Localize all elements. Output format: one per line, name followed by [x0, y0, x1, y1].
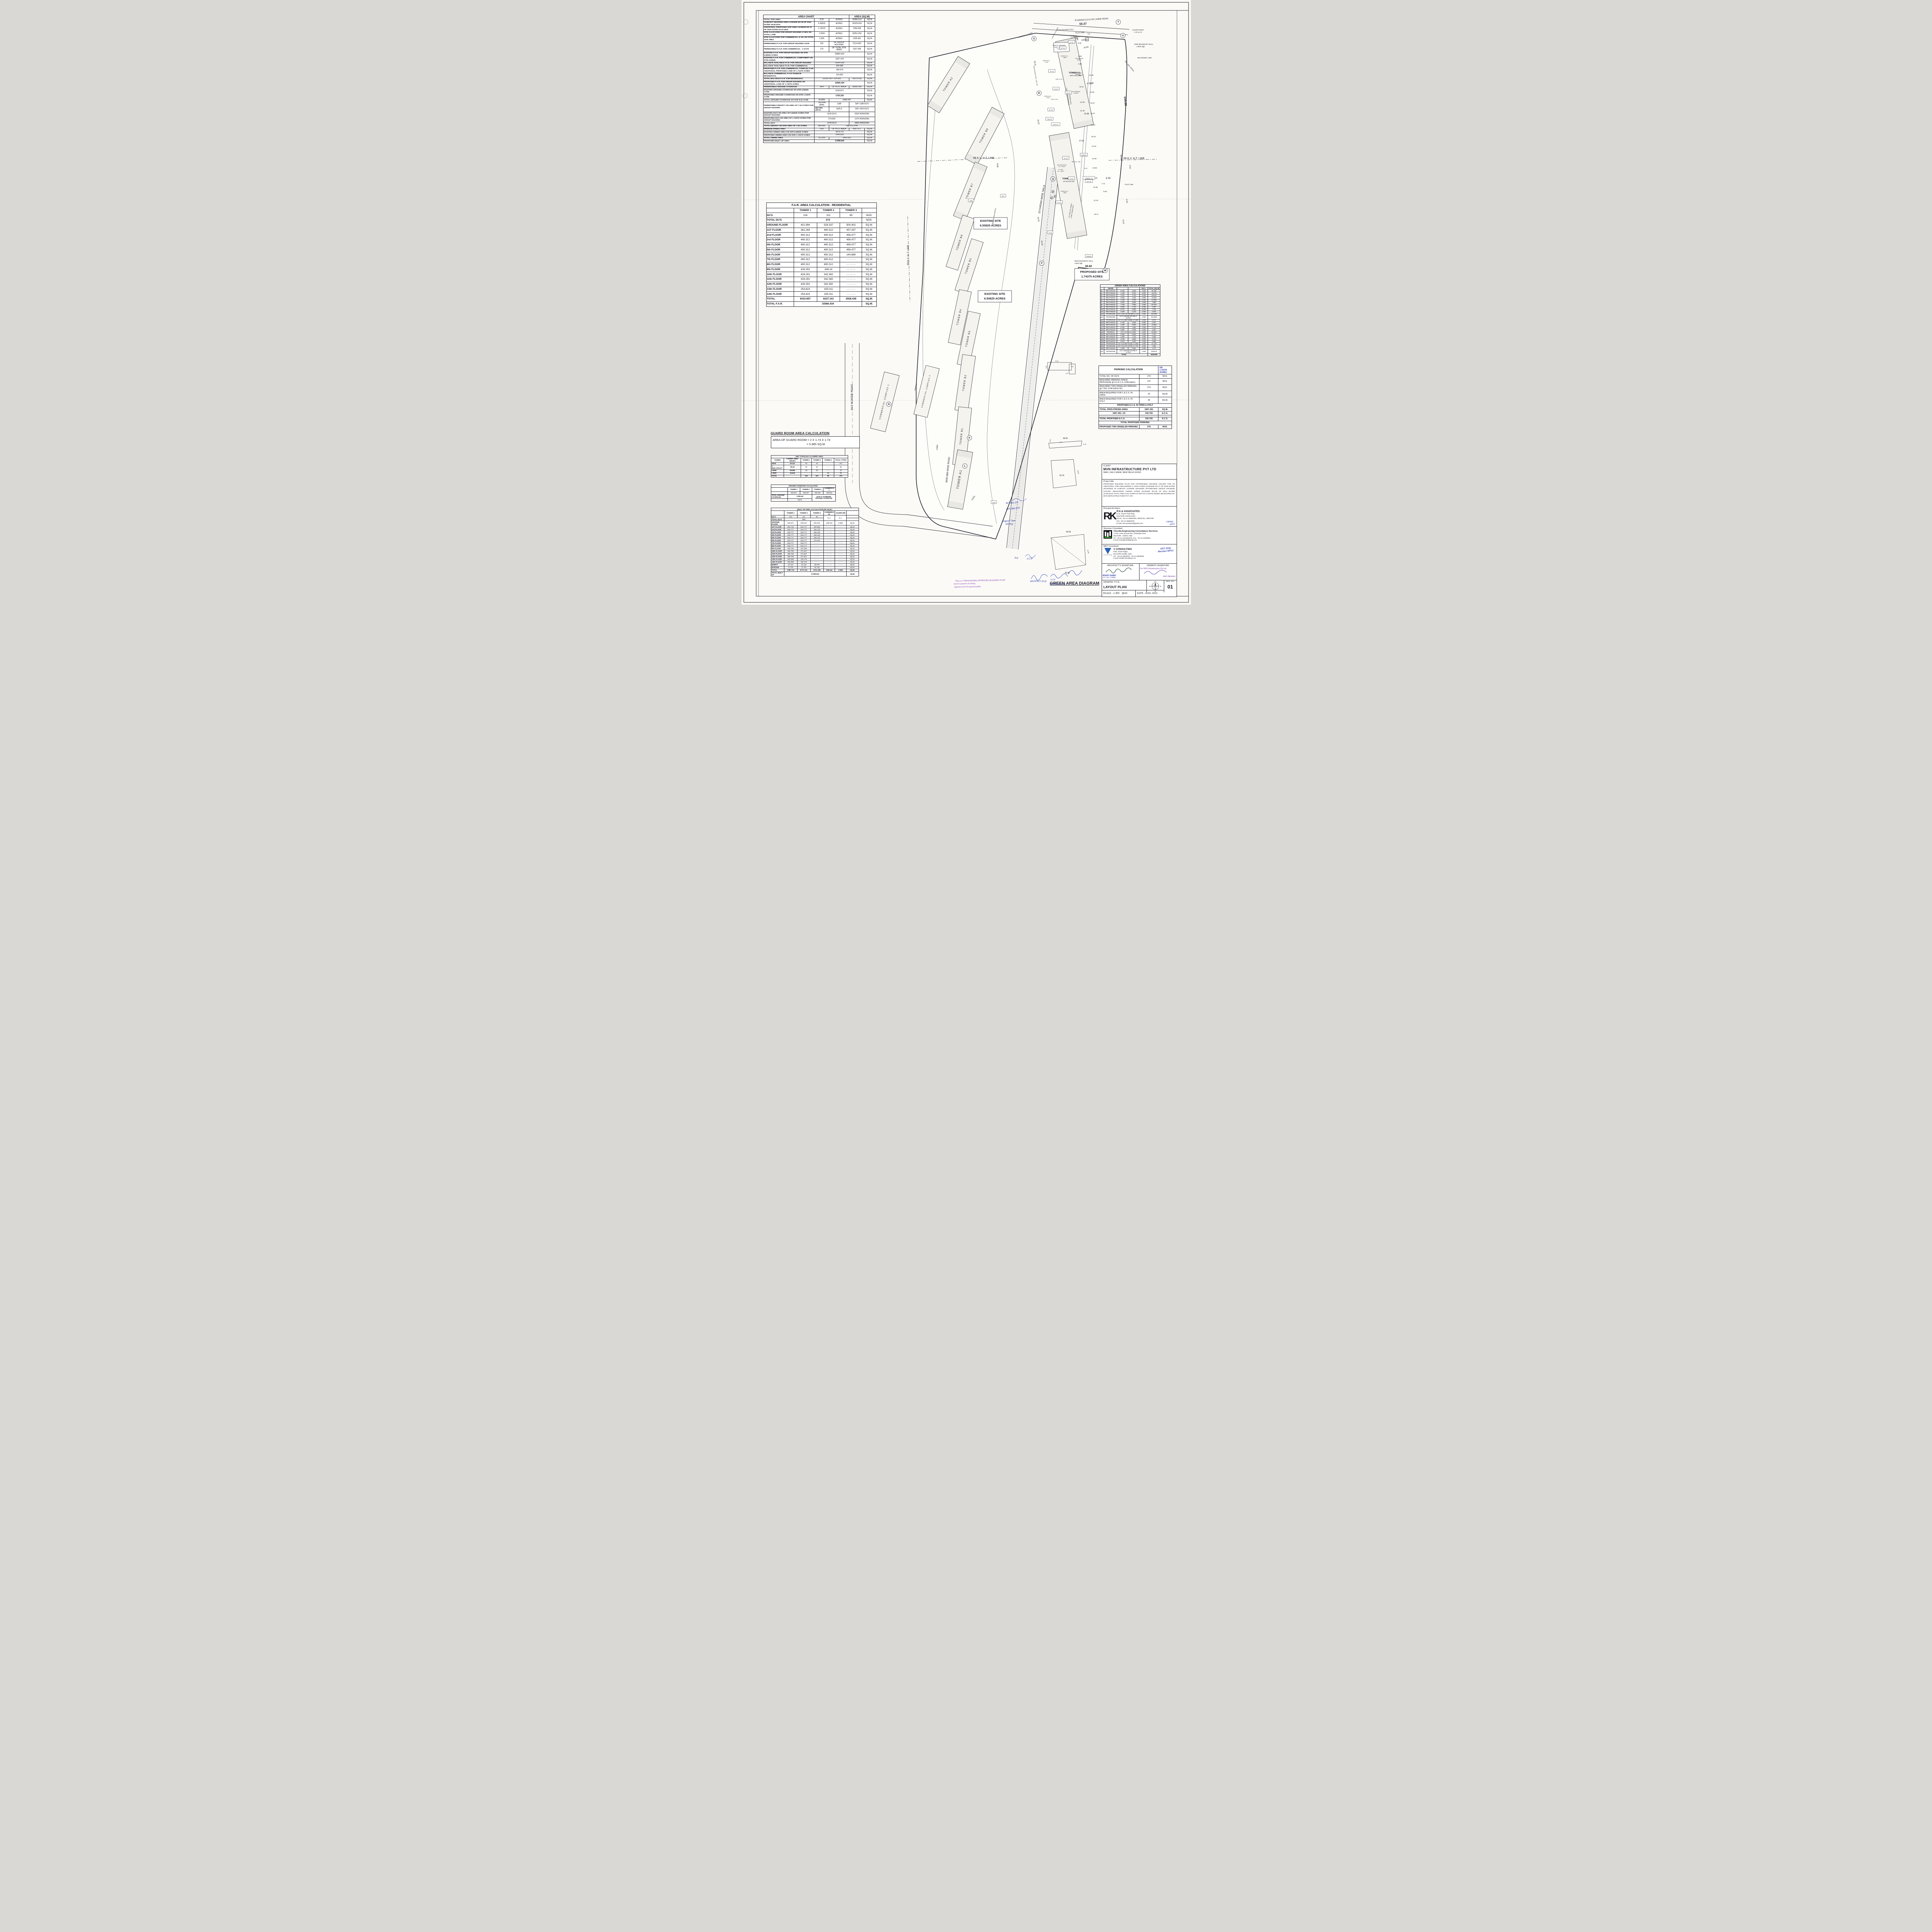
table-row: M.ROOM71.37071.37064.745- - - - -SQ.M. — [771, 566, 859, 569]
table-cell: SQ.M. — [862, 257, 876, 262]
plan-label: PARKING — [1077, 59, 1081, 61]
table-cell: 1ST FLOOR — [771, 526, 784, 528]
architect-line: Ph.No: +91-11-26963158, 26516751, 265673… — [1117, 517, 1154, 520]
table-row: TOTAL PROPOSED E.C.S.150.755E.C.S. — [1099, 417, 1172, 421]
table-cell: 342.382 — [817, 282, 840, 287]
table-cell: 490.312 — [794, 257, 817, 262]
table-cell: 150.755 — [1139, 417, 1158, 421]
punch-hole — [743, 20, 748, 24]
table-cell: 519.777 — [784, 528, 797, 531]
table-cell: N.A. — [823, 515, 835, 521]
plan-label: 15.17 — [1094, 213, 1099, 215]
table-cell: 6.50625 — [815, 21, 829, 26]
table-cell: - - - - - — [835, 542, 847, 544]
table-cell: 519.777 — [784, 542, 797, 544]
table-cell: TOWER — [771, 458, 784, 463]
table-cell: GROUND COVERAGE CALCULATION — [771, 485, 835, 488]
table-cell: SQ.M. — [865, 47, 875, 52]
plan-label: L — [964, 465, 966, 468]
table-cell: - - - - - — [835, 544, 847, 547]
table-cell: SQ.M. — [1158, 391, 1172, 397]
plan-label: 55.37 — [1079, 22, 1087, 26]
table-cell: 60 — [834, 465, 848, 470]
plan-boxed-label: G+14 — [1053, 87, 1059, 90]
plan-label: PROPOSED SITE — [1080, 270, 1104, 274]
table-row: PROPOSED E.C.S. IN OPEN & STILT — [1099, 403, 1172, 407]
table-cell: 2nd FLOOR — [771, 528, 784, 531]
table-cell: 69 — [822, 475, 834, 478]
table-cell: SQ.M. — [865, 41, 875, 46]
table-cell: - - - - - — [823, 558, 835, 561]
table-cell: 71.370 — [797, 566, 810, 569]
table-cell: RECTANGLE — [1104, 336, 1117, 338]
table-cell: - - - - - — [810, 550, 823, 553]
table-cell: - - - - - — [835, 558, 847, 561]
table-row: 11th FLOOR426.291342.382- - - - - -SQ.M. — [766, 277, 876, 282]
plan-label: LVL.+ 49910 — [1057, 170, 1064, 172]
plan-label: 5.03 — [1055, 360, 1059, 362]
table-cell: 4th FLOOR — [771, 534, 784, 536]
plan-label: only for purpose of inviting — [953, 583, 975, 585]
table-row: 7th FLOOR490.312490.312- - - - - -SQ.M. — [766, 257, 876, 262]
table-cell: 750 PPA (MIN) — [815, 102, 829, 107]
table-row: 12th FLOOR426.291342.382- - - - - -SQ.M. — [766, 282, 876, 287]
table-row: 4th FLOOR519.777519.777484.132- - - - --… — [771, 534, 859, 536]
table-row: TOTAL GROUND COVERAGE ON SITE 8.25 ACRE2… — [763, 99, 875, 102]
plan-label: 27.93 — [1079, 140, 1084, 142]
table-cell: SQ.M. — [865, 131, 875, 134]
table-cell: TOTAL BALANCE F.A.R. FOR RESIDENSIAL — [763, 78, 815, 81]
plan-marker-P: P — [1039, 261, 1044, 265]
plan-label: 66 K.V. H.T. LINE — [1123, 157, 1145, 160]
table-row: 6th FLOOR519.777519.777172.344- - - - --… — [771, 539, 859, 542]
table-cell: 13th FLOOR — [771, 558, 784, 561]
plan-label: (AD-HQ) — [1005, 523, 1013, 526]
table-cell: SQ.M. — [865, 62, 875, 65]
table-row: TOWER 1TOWER 2TOWER 3COMMERCIAL — [771, 487, 835, 492]
table-cell: 519.777 — [784, 544, 797, 547]
table-cell: SQ.M. — [862, 301, 876, 306]
table-cell: 30 — [801, 465, 812, 470]
plan-label: G+14 — [1061, 47, 1065, 49]
table-cell: SQ.M. — [1158, 407, 1172, 411]
table-cell: 519.777 — [797, 526, 810, 528]
table-cell: - - - - - — [835, 555, 847, 558]
table-cell: 71.370 — [784, 566, 797, 569]
far-calculation-panel: F.A.R. AREA CALCULATION - RESIDENTIALTOW… — [766, 202, 877, 307]
table-cell: SQ.M. — [846, 558, 859, 561]
table-cell: 401.994 — [794, 223, 817, 228]
table-cell: - - - - - — [823, 528, 835, 531]
table-row: EXISTING F.A.R. FOR COMMERCIAL COMPONENT… — [763, 57, 875, 62]
compass-e: E — [1160, 585, 1161, 587]
table-cell: 26329.818 — [849, 21, 865, 26]
table-cell: SQ.M. — [865, 128, 875, 131]
table-cell — [846, 515, 859, 518]
table-cell: 499.580 — [815, 65, 865, 68]
table-row: GROUND FLOOR526.871529.337500.402198.615… — [771, 521, 859, 526]
table-row: MINIMUM GREEN AREA15%OF PLOT AREA5007.97… — [763, 128, 875, 131]
table-cell: 438.14 — [817, 267, 840, 272]
table-cell: 4th FLOOR — [766, 242, 794, 247]
table-cell: 101 — [811, 475, 822, 478]
table-cell: SQ.M. — [865, 137, 875, 140]
table-cell: 526.872 — [787, 492, 800, 495]
plan-label: 26.82 — [1085, 265, 1092, 268]
table-cell: SQ.M. — [862, 247, 876, 252]
table-cell: M.ROOM — [771, 566, 784, 569]
table-cell: 6890 PERSONS — [849, 122, 875, 125]
table-row: 11th FLOOR455.756371.847- - - - -- - - -… — [771, 553, 859, 555]
table-cell — [766, 208, 794, 213]
table-row: EXISTING DU'S ON AREA OF 6.50625 ACRES F… — [763, 112, 875, 117]
table-cell: 1ST FLOOR — [766, 228, 794, 233]
plan-boxed-label: G+12 — [1068, 41, 1075, 44]
plan-boxed-label: G+14 — [1048, 108, 1054, 111]
table-row: TOTAL1045.829 — [1100, 354, 1160, 356]
table-cell: TRAPEZIUM — [1104, 313, 1117, 315]
plan-boxed-label: G+12 — [1062, 156, 1069, 160]
table-cell: GREEN AREA CALCULATIONS — [1100, 285, 1160, 287]
table-cell: - - - - - — [823, 534, 835, 536]
structure-consultant-label: Structure Consultant: — [1104, 527, 1175, 530]
table-cell: SQ.M. — [865, 57, 875, 62]
plan-label: LVL.+150 — [1070, 37, 1077, 39]
plan-label: 12.08 — [1080, 101, 1085, 103]
plan-label: g1 — [1051, 197, 1053, 199]
table-row: EXISTING GREEN AREA ON SITE 6.50625 ACRE… — [763, 131, 875, 134]
table-cell: SQ.M. — [865, 36, 875, 41]
table-cell: - - - - - — [823, 547, 835, 550]
table-row: PERMISSIBLE GROUND COVERAGE50%OF PLOT AR… — [763, 86, 875, 89]
table-cell: - - - - - — [810, 542, 823, 544]
built-up-panel: BUILT UP AREA CALCULATION (IN SQ.M.)TOWE… — [771, 508, 859, 577]
table-cell: 172.344 — [810, 539, 823, 542]
punch-hole — [743, 94, 747, 98]
plan-label: K — [968, 437, 970, 439]
table-cell: TOWER 3 — [812, 487, 823, 492]
table-cell: 198.615 — [823, 492, 835, 495]
plan-label: G+12 — [1070, 41, 1074, 43]
table-cell: UNIT TYPOLOGY & CARPET AREA — [771, 456, 848, 458]
table-row: TOTAL SITE AREA8.25ACRES33386.513SQ.M. — [763, 19, 875, 22]
guard-room-line1: AREA OF GUARD ROOM = 2 X 1.73 X 1.73 — [773, 438, 858, 442]
table-cell: 1188 — [829, 102, 849, 107]
plan-label: N — [888, 403, 889, 406]
table-row: BALANCE AVAILABLE F.A.R. FOR COMMERCIAL4… — [763, 65, 875, 68]
table-cell: SQ.M. — [862, 277, 876, 282]
plan-label: 4.23 — [1083, 443, 1087, 445]
table-cell: PROPOSED F.A.R. FOR COMMERCIAL COMPLEX 3… — [763, 68, 815, 73]
table-cell: - - - - - — [823, 566, 835, 569]
drg-no-cell: DRG. NO. 01 — [1164, 580, 1177, 592]
scale-value: SCALE - 1:350 — [1103, 592, 1120, 595]
table-row: 1 BHK34.616- - - -- - - -6969 — [771, 472, 848, 475]
plan-label: S.T.P. — [1050, 579, 1055, 581]
plan-boxed-label: G07 — [1000, 194, 1005, 197]
plan-label: 26.40 — [1065, 572, 1070, 574]
table-cell — [771, 492, 787, 495]
table-row: TOWERCARPET AREA (SQ.M.)TOWER 1TOWER 2TO… — [771, 458, 848, 463]
table-cell: 11th FLOOR — [766, 277, 794, 282]
table-cell: 490.312 — [817, 233, 840, 238]
chordia-logo — [1104, 530, 1112, 539]
table-cell: SQ.M. — [846, 521, 859, 526]
plan-label: 24.0 M WIDE ROAD — [850, 384, 854, 410]
table-cell: 7080.724 — [784, 569, 797, 571]
table-cell: 391.734 — [784, 526, 797, 528]
plan-label: GUARD ROOM — [1132, 29, 1144, 31]
plan-label: PARKING — [1073, 92, 1078, 94]
plan-label: 8.40 — [1076, 37, 1078, 41]
owner-signature-scribble — [1140, 570, 1171, 575]
table-cell: TOTAL SITE AREA — [763, 19, 815, 22]
table-cell: 7th FLOOR — [771, 542, 784, 544]
table-cell: NOS. — [1158, 378, 1172, 384]
table-cell: 72114.867 — [849, 41, 865, 46]
plan-label: g3 — [1052, 191, 1054, 192]
architect-signature-scribble — [1103, 567, 1134, 574]
table-cell: RECTANGLE — [1104, 327, 1117, 329]
table-cell: 426.291 — [794, 277, 817, 282]
plan-label: G08 — [969, 200, 973, 202]
table-cell: 490.312 — [794, 247, 817, 252]
table-cell: PROPOSED GROUND COVERAGE ON SITE 1.74375… — [763, 94, 815, 99]
table-cell: 64.745 — [810, 566, 823, 569]
plan-label: 60.35 — [1122, 219, 1124, 224]
table-cell: 14th FLOOR — [771, 561, 784, 563]
table-cell: - - - - — [822, 465, 834, 470]
table-row: 4th FLOOR490.312490.312456.477SQ.M. — [766, 242, 876, 247]
table-row: F.A.R. AREA CALCULATION - RESIDENTIAL — [766, 203, 876, 208]
plan-label: + 38800 — [1062, 57, 1066, 58]
table-row: 6th FLOOR490.312490.312144.689SQ.M. — [766, 252, 876, 257]
table-cell: 519.777 — [797, 544, 810, 547]
plan-label: G+14 — [1050, 70, 1054, 72]
table-cell: SQ.M. — [865, 86, 875, 89]
table-cell: 101 — [817, 213, 840, 218]
ground-coverage-table: GROUND COVERAGE CALCULATIONTOWER 1TOWER … — [771, 485, 836, 502]
table-cell: 5th FLOOR — [771, 536, 784, 539]
table-row: TOTAL GREEN AREA16.23%5420.001SQ.M. — [763, 137, 875, 140]
table-cell: F.A.R. AREA CALCULATION - RESIDENTIAL — [766, 203, 876, 208]
table-cell: GROUND FLOOR — [771, 521, 784, 526]
table-cell: 15566.434 — [815, 81, 865, 86]
table-cell: BALANCE AVAILABLE F.A.R. FOR GROUP HOUSI… — [763, 62, 815, 65]
plan-label: GREEN — [1086, 255, 1091, 257]
plan-marker-N: N — [886, 402, 891, 406]
table-row: 10th FLOOR426.291342.382- - - - - -SQ.M. — [766, 272, 876, 277]
table-cell: GUARD RM — [835, 511, 847, 515]
table-cell: 8.25 — [815, 19, 829, 22]
client-address: 58A/1, KALU SARAI, NEW DELHI-110016 — [1104, 471, 1175, 474]
table-row: REQUIRED TWO WHEELER PARKING @ 1 NO. FOR… — [1099, 384, 1172, 391]
table-cell: ADDITIONAL PROPOSED SITE AREA LICENSE NO… — [763, 26, 815, 31]
table-cell: SQ.M. — [846, 542, 859, 544]
table-cell: 1.000 — [1139, 350, 1148, 354]
table-cell: 274 — [1139, 374, 1158, 378]
table-cell: 6946.097 — [829, 99, 865, 102]
table-cell: 342.382 — [817, 277, 840, 282]
plan-label: 6.00 — [1078, 55, 1082, 57]
plan-label: G+14 — [1049, 109, 1053, 111]
plan-label: 20.15 — [1059, 474, 1064, 477]
plan-label: 1.74375 ACRES — [1081, 275, 1102, 278]
plan-label: G+14 — [1054, 88, 1058, 90]
table-cell: - - - - - — [810, 547, 823, 550]
table-cell: SQ.M. — [862, 297, 876, 302]
table-cell: 5.985 — [835, 521, 847, 526]
table-cell: SQ.M. — [846, 555, 859, 558]
plan-label: T — [1117, 21, 1119, 24]
table-row: GREEN AREA CALCULATIONS — [1100, 285, 1160, 287]
table-cell: DU'S — [766, 213, 794, 218]
project-title-label: Project title: — [1104, 480, 1175, 483]
table-row: 5th FLOOR519.777519.777484.132- - - - --… — [771, 536, 859, 539]
table-cell: 2928.436 — [840, 297, 862, 302]
table-cell: 198.615 — [823, 521, 835, 526]
table-cell: 526.871 — [784, 521, 797, 526]
table-cell: 490.312 — [817, 238, 840, 243]
table-cell: TOTAL — [766, 297, 794, 302]
table-cell: N.A. — [835, 515, 847, 521]
table-cell: 3211.186 — [810, 569, 823, 571]
plan-label: 43.86 — [1126, 199, 1128, 203]
table-cell: 490.312 — [794, 238, 817, 243]
table-cell: 274 — [794, 218, 862, 223]
table-cell: 8th FLOOR — [771, 544, 784, 547]
table-cell: 334.883 — [1148, 315, 1160, 320]
table-cell: 900 PPA (MAX) — [815, 107, 829, 112]
table-cell: - - - - - — [823, 531, 835, 534]
table-cell: 12th FLOOR — [766, 282, 794, 287]
table-cell: CARPET AREA (SQ.M.) — [784, 458, 801, 463]
table-cell: MUMTY — [771, 563, 784, 566]
mep-name: V CONSULTING — [1114, 548, 1144, 551]
table-cell: 6th FLOOR — [771, 539, 784, 542]
table-cell: 491.092 — [810, 526, 823, 528]
table-row: PROPOSED TWO WHEELER PARKING279NOS. — [1099, 425, 1172, 429]
plan-label: 9.00 — [996, 163, 998, 167]
plan-boxed-label: G08 — [968, 199, 973, 202]
table-cell: TOTAL DU'S — [771, 518, 784, 521]
table-cell: 175 — [815, 47, 829, 52]
plan-boxed-label: G16 — [991, 501, 996, 504]
table-cell: SQ.M. — [865, 65, 875, 68]
table-cell: 519.777 — [797, 539, 810, 542]
unit-typology-panel: UNIT TYPOLOGY & CARPET AREATOWERCARPET A… — [771, 455, 848, 478]
table-cell: OF PLOT AREA — [829, 86, 849, 89]
table-cell: 490.312 — [817, 257, 840, 262]
table-cell: COMMERCIAL — [823, 487, 835, 492]
table-cell: TOTAL GREEN AREA — [763, 137, 815, 140]
table-cell: 2337.056 — [849, 47, 865, 52]
table-cell: - - - - - — [810, 553, 823, 555]
table-cell: - - - - - - — [840, 282, 862, 287]
client-label: CLIENT — [1104, 465, 1175, 467]
plan-marker-L: L — [963, 464, 967, 468]
plan-label: S — [1033, 37, 1035, 40]
table-cell: TOTAL — [1100, 354, 1148, 356]
table-cell: - - - - - - — [840, 257, 862, 262]
table-cell: SQ.M. — [846, 544, 859, 547]
table-cell: - - - - - - — [840, 287, 862, 292]
plan-label: 28.49 — [1066, 531, 1071, 533]
table-row: 5th FLOOR490.312490.312456.477SQ.M. — [766, 247, 876, 252]
table-row: TOTAL GROUND COVERAGE1755.22624.87 % ACH… — [771, 494, 835, 498]
area-chart-table: AREA CHARTAREA (SQ.M)TOTAL SITE AREA8.25… — [763, 15, 875, 143]
plan-label: + 44700 — [1044, 61, 1048, 63]
client-name: MVN INFRASTRUCTURE PVT LTD — [1104, 468, 1175, 471]
table-cell: 500.402 — [840, 223, 862, 228]
table-cell: SQ.M. — [865, 94, 875, 99]
plan-label: 1.50 — [1046, 366, 1047, 369]
table-row: 3 BHK59.9691826- - - -44 — [771, 469, 848, 472]
plan-label: R — [1038, 92, 1040, 95]
table-cell: 1.000 — [1139, 315, 1148, 320]
table-cell: 284.088 — [784, 561, 797, 563]
handwritten-date: 6/8/21 — [1169, 523, 1175, 526]
table-row: 12th FLOOR455.756371.847- - - - -- - - -… — [771, 555, 859, 558]
table-cell: 59.969 — [784, 469, 801, 472]
table-cell: 314.901 — [815, 73, 865, 78]
plan-label: ARCHITECT (H.Q) — [1029, 580, 1046, 583]
plan-marker-g1: g1 — [1050, 197, 1053, 199]
table-cell: 104 — [801, 475, 812, 478]
table-cell: 1755.226 — [787, 494, 812, 498]
table-cell: - - - - - — [835, 563, 847, 566]
table-cell: 12th FLOOR — [771, 555, 784, 558]
table-cell: 9th FLOOR — [766, 267, 794, 272]
table-cell: - - - - - — [810, 544, 823, 547]
table-cell: 44 — [834, 469, 848, 472]
table-cell: - - - - - - — [840, 277, 862, 282]
plan-boxed-label: G+14 — [1048, 70, 1055, 73]
plan-label: 1.24 — [1059, 442, 1062, 443]
table-row: PROPOSED F.A.R. FOR GROUP HOUSING ON ADD… — [763, 81, 875, 86]
project-title: PROPOSED BUILDING PLAN FOR AFFORDABLE HO… — [1104, 483, 1175, 498]
table-cell: 371.847 — [797, 555, 810, 558]
table-cell: 500.402 — [810, 521, 823, 526]
table-cell: SQ.M. — [865, 89, 875, 94]
table-cell: 1045.829 — [815, 134, 865, 137]
green-area-calc-table: GREEN AREA CALCULATIONSSHAPENO.S.TOTAL (… — [1100, 284, 1160, 356]
table-cell: TOTAL DU'S — [766, 218, 794, 223]
table-cell: NOS. — [1158, 425, 1172, 429]
architect-name: R.K.& ASSOCIATES — [1117, 510, 1154, 513]
compass-w: W — [1149, 585, 1151, 587]
unit-typology-table: UNIT TYPOLOGY & CARPET AREATOWERCARPET A… — [771, 455, 848, 478]
plan-label: (G+8,9,12,14) — [1063, 180, 1074, 182]
table-cell — [771, 499, 787, 502]
table-cell: SITE ALLOCATED FOR GROUP HOUSING @ 96% O… — [763, 31, 815, 36]
ground-coverage-panel: GROUND COVERAGE CALCULATIONTOWER 1TOWER … — [771, 485, 836, 502]
table-cell: SQ.M. — [846, 531, 859, 534]
table-cell: E.C.S. — [1158, 417, 1172, 421]
table-cell: 5520 PERSONS — [849, 112, 875, 117]
table-cell: PERMISSIBLE F.A.R. FOR GROUP HOUSING @22… — [763, 41, 815, 46]
plan-label: 6.0 — [1087, 33, 1090, 35]
table-cell: SQ.M. — [865, 26, 875, 31]
plan-marker-g3: g3 — [1051, 190, 1054, 193]
table-cell: 15264.205 — [815, 62, 865, 65]
plan-label: OPEN TO SKY — [1055, 78, 1063, 80]
table-cell: SQ.M. — [865, 81, 875, 86]
plan-label: g2 — [1054, 196, 1056, 197]
drawing-title: LAYOUT PLAN — [1104, 585, 1145, 589]
table-row: PROPOSED GROUND COVERAGE ON SITE 1.74375… — [763, 94, 875, 99]
table-cell: 1/2 X (28.490+26.400) X 11.910 — [1117, 350, 1139, 354]
